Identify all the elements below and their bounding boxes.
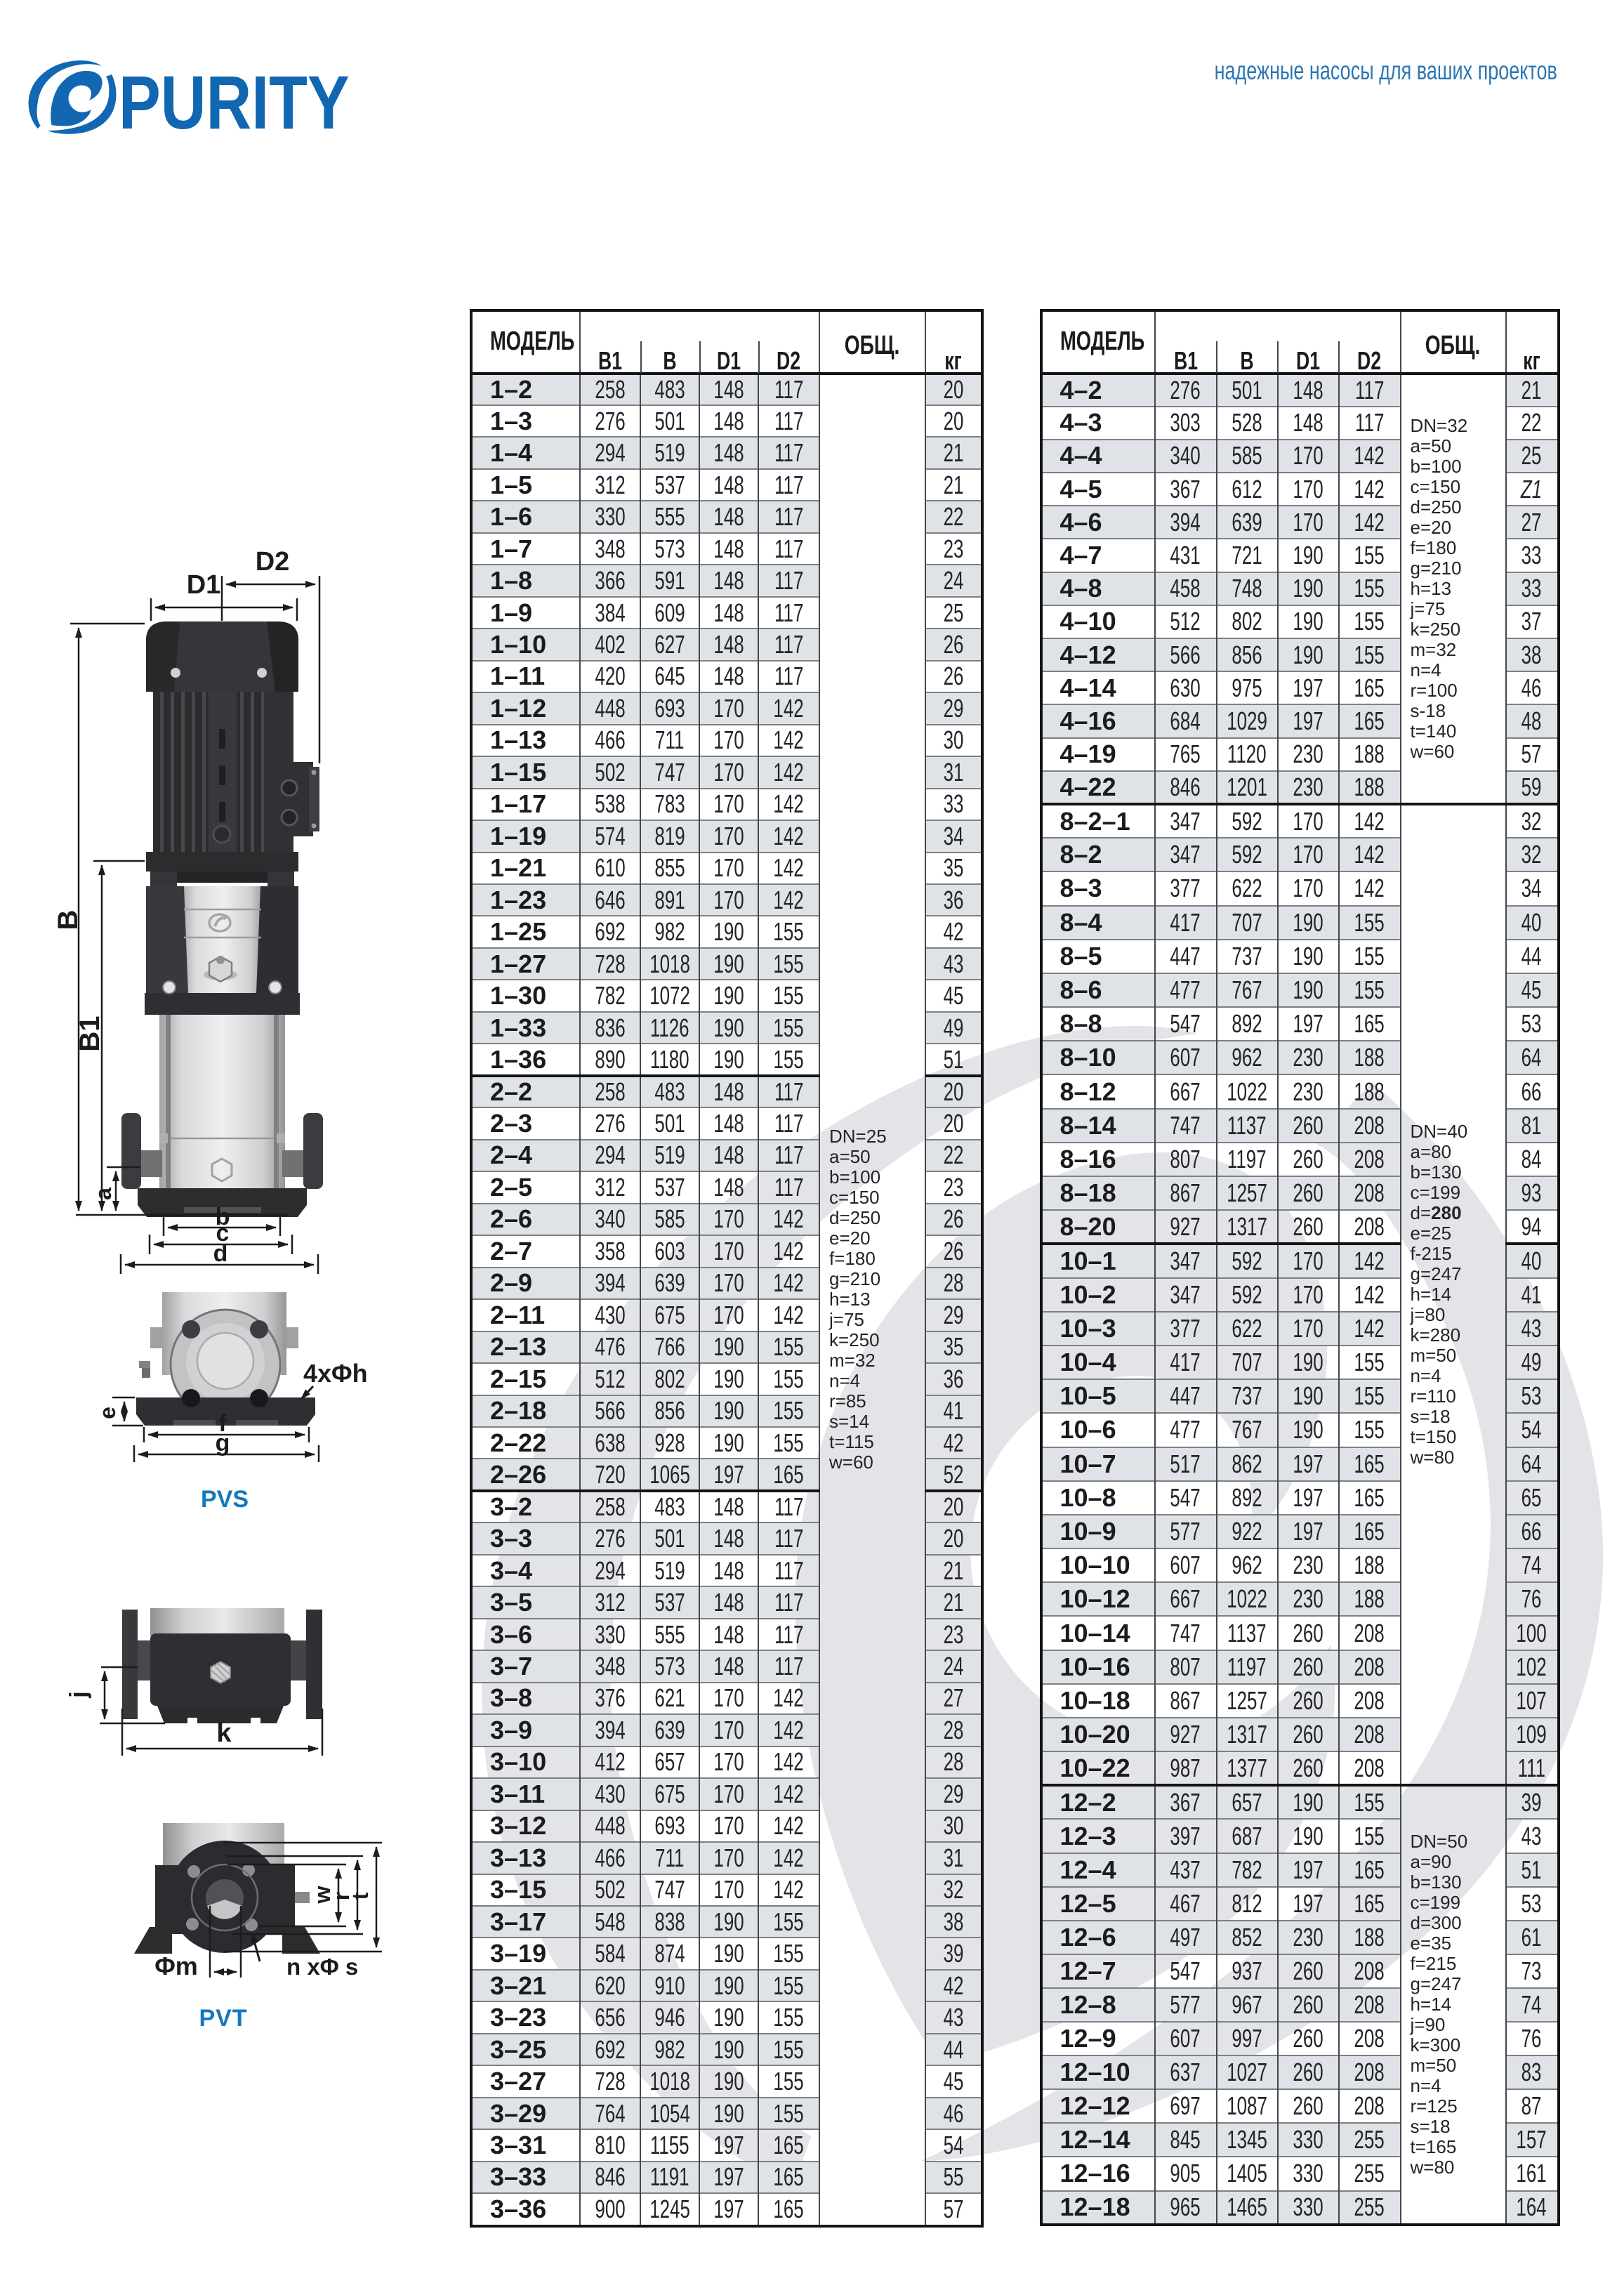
svg-text:4xΦh: 4xΦh bbox=[303, 1359, 368, 1388]
svg-text:B: B bbox=[53, 910, 84, 930]
svg-text:PVS: PVS bbox=[201, 1486, 249, 1513]
svg-text:a: a bbox=[91, 1188, 116, 1200]
svg-text:B1: B1 bbox=[74, 1015, 105, 1051]
svg-text:d: d bbox=[213, 1240, 228, 1267]
svg-text:PVT: PVT bbox=[199, 2005, 247, 2032]
svg-text:j: j bbox=[65, 1691, 92, 1698]
svg-text:e: e bbox=[95, 1407, 120, 1419]
svg-text:n xΦ s: n xΦ s bbox=[286, 1954, 358, 1980]
svg-text:Φm: Φm bbox=[154, 1952, 198, 1980]
svg-text:g: g bbox=[216, 1430, 230, 1456]
svg-text:k: k bbox=[216, 1718, 232, 1748]
svg-text:t: t bbox=[348, 1892, 373, 1900]
svg-text:D2: D2 bbox=[256, 547, 290, 577]
svg-text:D1: D1 bbox=[187, 570, 221, 600]
